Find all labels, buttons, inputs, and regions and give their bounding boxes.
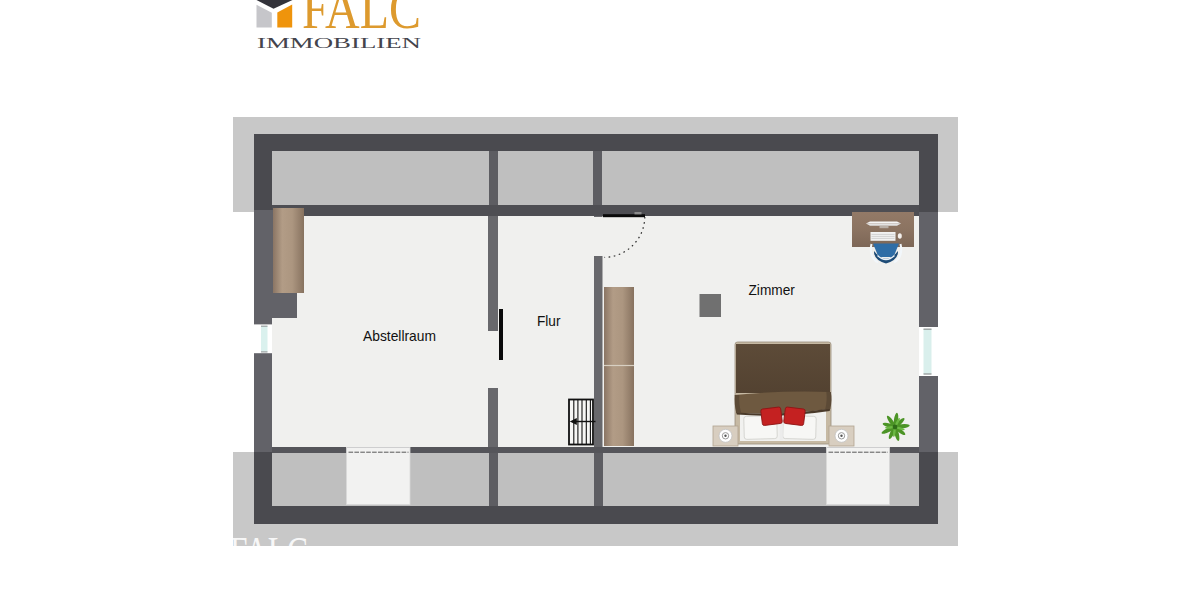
svg-text:Abstellraum: Abstellraum — [363, 328, 436, 344]
svg-text:Flur: Flur — [537, 313, 561, 329]
svg-text:IMMOBILIEN: IMMOBILIEN — [257, 35, 422, 51]
svg-text:Zimmer: Zimmer — [749, 282, 796, 298]
